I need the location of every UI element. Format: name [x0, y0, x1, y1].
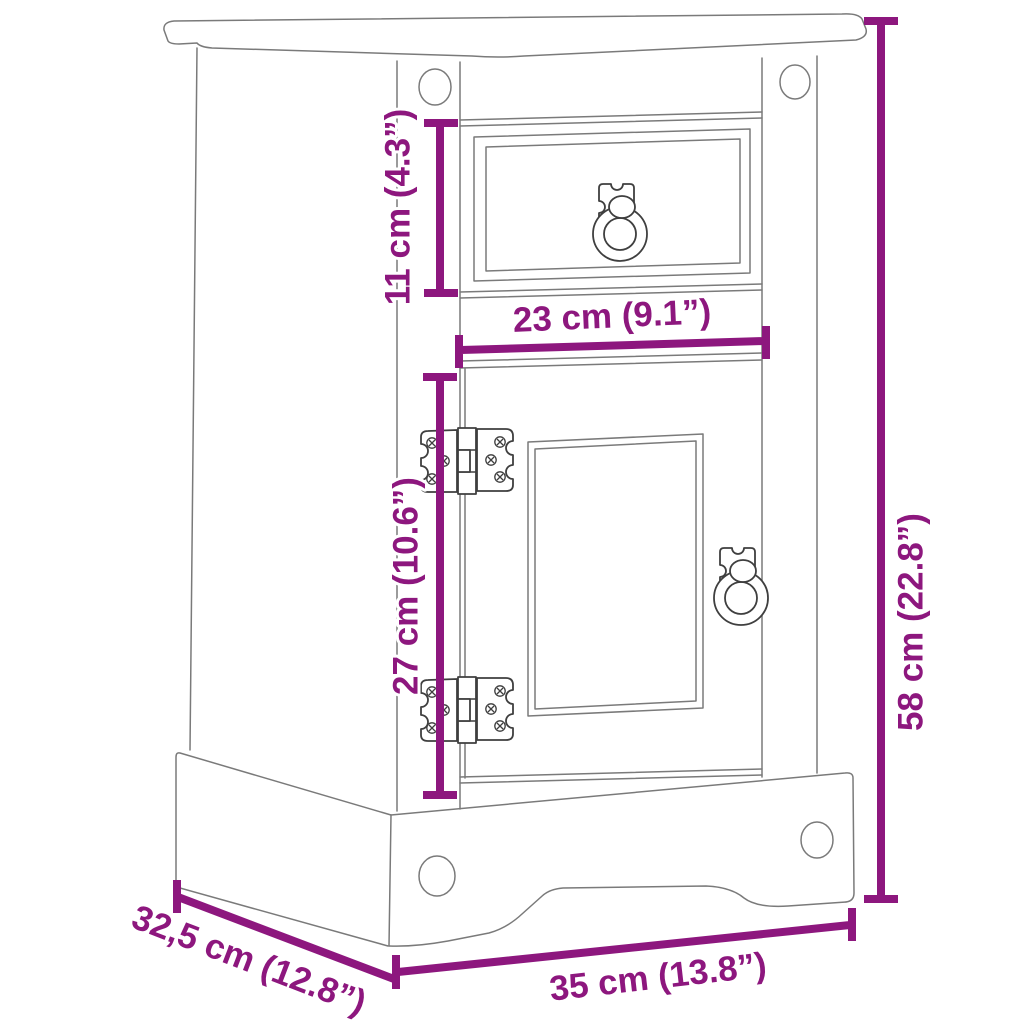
wood-peg-icon	[801, 822, 833, 858]
wood-peg-icon	[419, 69, 451, 105]
dimension-label: 58 cm (22.8”)	[892, 513, 931, 731]
product-dimension-diagram: 11 cm (4.3”) 23 cm (9.1”) 27 cm (10.6”) …	[0, 0, 1024, 1024]
wood-peg-icon	[419, 856, 455, 896]
dimension-label: 11 cm (4.3”)	[379, 109, 418, 306]
wood-peg-icon	[780, 65, 810, 99]
dimension-label: 23 cm (9.1”)	[512, 292, 712, 340]
hinge-top-icon	[421, 428, 513, 494]
door-ring-pull-icon	[714, 548, 768, 625]
dimension-overall-width: 35 cm (13.8”)	[396, 908, 852, 1009]
drawer-ring-pull-icon	[593, 184, 647, 261]
dimension-drawer-height: 11 cm (4.3”)	[379, 109, 459, 306]
dimension-label: 27 cm (10.6”)	[387, 477, 426, 695]
dimension-overall-height: 58 cm (22.8”)	[864, 21, 931, 899]
diagram-canvas: 11 cm (4.3”) 23 cm (9.1”) 27 cm (10.6”) …	[0, 0, 1024, 1024]
cabinet-drawing	[164, 14, 866, 946]
hinge-bottom-icon	[421, 677, 513, 743]
dimension-overall-depth: 32,5 cm (12.8”)	[127, 880, 394, 1022]
cabinet-top	[164, 14, 866, 57]
